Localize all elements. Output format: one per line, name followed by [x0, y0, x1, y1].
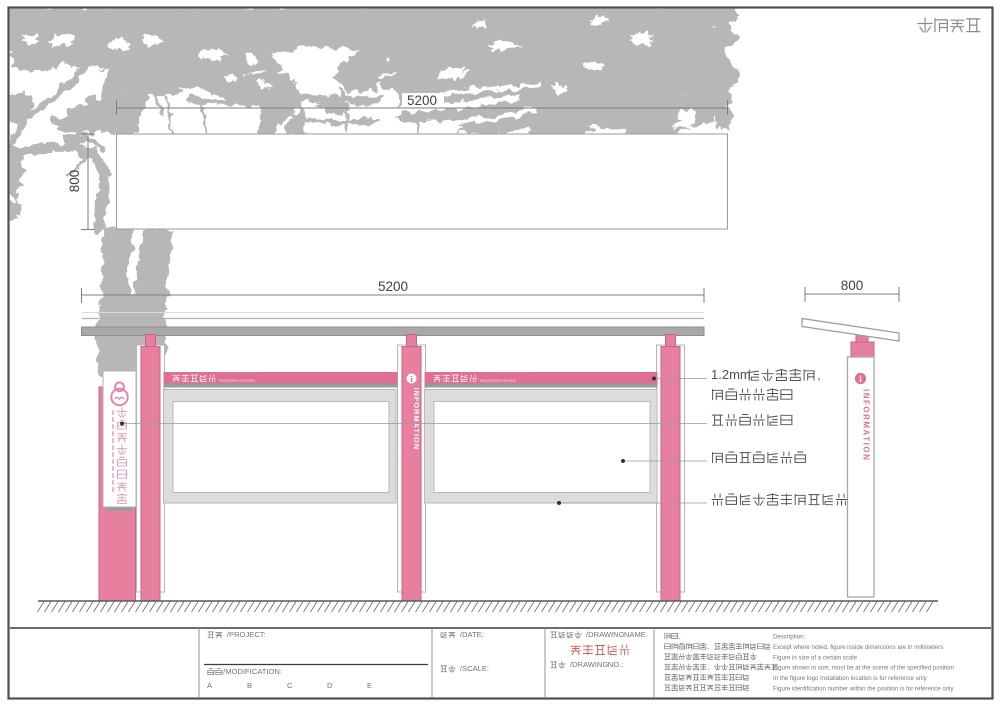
svg-text:800: 800 [841, 278, 864, 293]
svg-text:/DRAWING: /DRAWING [570, 660, 609, 669]
svg-text:INFORMATION: INFORMATION [861, 389, 870, 461]
svg-text:/SCALE:: /SCALE: [460, 664, 489, 673]
svg-text:5200: 5200 [407, 93, 437, 108]
svg-text:In the figure logo installatio: In the figure logo installation location… [773, 675, 928, 682]
svg-text:Department section: Department section [219, 378, 256, 383]
svg-text:B: B [247, 681, 252, 690]
svg-text:NAME.: NAME. [624, 630, 648, 639]
svg-text:D: D [327, 681, 333, 690]
svg-text:Figure identification number w: Figure identification number within the … [773, 686, 954, 693]
svg-text:/DRAWING: /DRAWING [586, 630, 625, 639]
svg-text:/MODIFICATION:: /MODIFICATION: [223, 667, 282, 676]
svg-text:800: 800 [67, 170, 82, 193]
svg-text:Description:: Description: [773, 634, 805, 641]
svg-text:E: E [367, 681, 372, 690]
svg-text:5200: 5200 [378, 279, 408, 294]
svg-text:/PROJECT:: /PROJECT: [227, 630, 266, 639]
svg-text:/DATE:: /DATE: [460, 630, 484, 639]
svg-text:NO.:: NO.: [608, 660, 624, 669]
svg-text:Figure in size of a certain sc: Figure in size of a certain scale [773, 654, 858, 661]
svg-text:Figure shown in size, must be: Figure shown in size, must be at the sce… [773, 665, 954, 672]
svg-text:C: C [287, 681, 293, 690]
svg-text:Except where noted, figure ins: Except where noted, figure inside dimens… [773, 644, 943, 651]
svg-text:INFORMATION: INFORMATION [412, 388, 421, 451]
svg-text:Department section: Department section [480, 378, 517, 383]
svg-text:1.2mm: 1.2mm [711, 367, 751, 382]
